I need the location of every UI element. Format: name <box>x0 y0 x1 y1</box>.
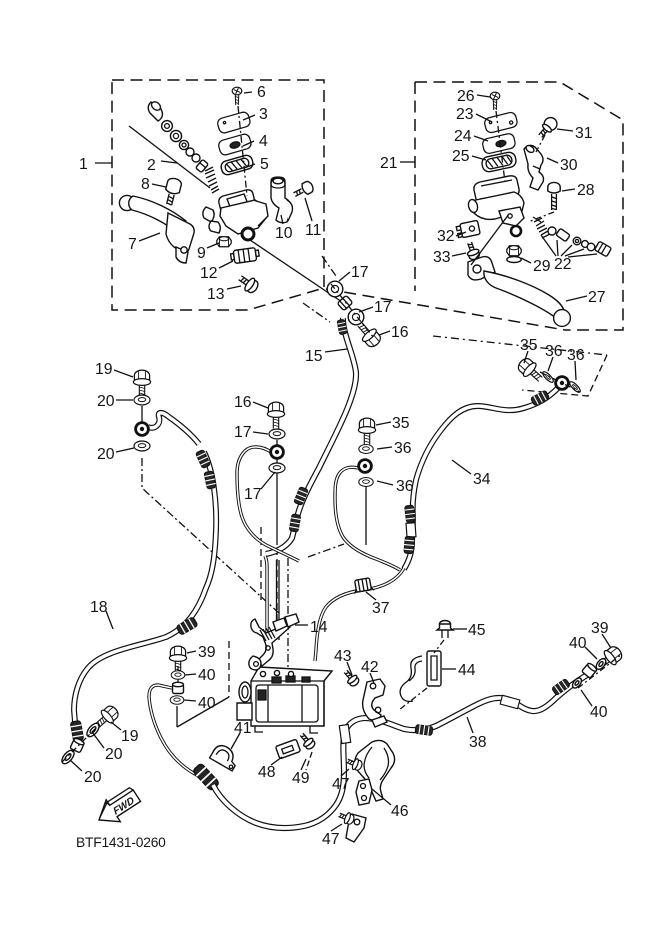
svg-text:BTF1431-0260: BTF1431-0260 <box>76 835 166 850</box>
svg-text:8: 8 <box>141 176 150 193</box>
svg-text:36: 36 <box>545 343 563 360</box>
svg-text:22: 22 <box>554 256 572 273</box>
svg-text:47: 47 <box>322 831 340 848</box>
svg-text:9: 9 <box>197 245 206 262</box>
svg-text:49: 49 <box>292 770 310 787</box>
svg-text:38: 38 <box>469 734 487 751</box>
svg-text:39: 39 <box>198 644 216 661</box>
svg-text:30: 30 <box>560 157 578 174</box>
svg-text:24: 24 <box>454 128 472 145</box>
svg-text:36: 36 <box>567 347 585 364</box>
svg-text:46: 46 <box>391 803 409 820</box>
svg-text:47: 47 <box>332 776 350 793</box>
svg-text:25: 25 <box>452 148 470 165</box>
svg-text:10: 10 <box>275 225 293 242</box>
svg-text:21: 21 <box>380 155 398 172</box>
svg-text:1: 1 <box>79 156 88 173</box>
svg-text:20: 20 <box>97 393 115 410</box>
svg-text:4: 4 <box>259 133 268 150</box>
svg-text:41: 41 <box>234 720 252 737</box>
svg-text:17: 17 <box>234 424 252 441</box>
svg-text:6: 6 <box>257 84 266 101</box>
svg-text:32: 32 <box>437 228 455 245</box>
svg-text:27: 27 <box>588 289 606 306</box>
svg-text:31: 31 <box>575 125 593 142</box>
svg-text:45: 45 <box>468 622 486 639</box>
svg-text:48: 48 <box>258 764 276 781</box>
svg-text:16: 16 <box>234 394 252 411</box>
svg-text:40: 40 <box>569 635 587 652</box>
svg-text:37: 37 <box>372 600 390 617</box>
svg-text:35: 35 <box>520 337 538 354</box>
svg-text:29: 29 <box>533 258 551 275</box>
svg-text:17: 17 <box>244 486 262 503</box>
svg-text:14: 14 <box>310 619 328 636</box>
svg-text:17: 17 <box>374 299 392 316</box>
svg-text:5: 5 <box>260 156 269 173</box>
svg-text:34: 34 <box>473 471 491 488</box>
svg-text:18: 18 <box>90 599 108 616</box>
svg-text:13: 13 <box>207 286 225 303</box>
svg-text:40: 40 <box>198 695 216 712</box>
svg-text:39: 39 <box>591 620 609 637</box>
svg-text:19: 19 <box>95 361 113 378</box>
svg-text:44: 44 <box>458 662 476 679</box>
svg-text:12: 12 <box>200 265 218 282</box>
svg-text:16: 16 <box>391 324 409 341</box>
svg-text:15: 15 <box>305 348 323 365</box>
svg-text:11: 11 <box>305 222 322 239</box>
svg-text:36: 36 <box>396 478 414 495</box>
svg-text:2: 2 <box>147 157 156 174</box>
svg-text:33: 33 <box>433 249 451 266</box>
svg-text:19: 19 <box>121 728 139 745</box>
svg-text:40: 40 <box>590 704 608 721</box>
svg-text:36: 36 <box>394 440 412 457</box>
svg-text:17: 17 <box>351 264 369 281</box>
svg-text:28: 28 <box>577 182 595 199</box>
svg-text:26: 26 <box>457 88 475 105</box>
svg-text:3: 3 <box>259 106 268 123</box>
svg-text:20: 20 <box>84 769 102 786</box>
svg-text:43: 43 <box>334 648 352 665</box>
svg-text:35: 35 <box>392 415 410 432</box>
svg-text:23: 23 <box>456 106 474 123</box>
svg-text:20: 20 <box>105 746 123 763</box>
svg-text:7: 7 <box>128 236 137 253</box>
svg-text:20: 20 <box>97 446 115 463</box>
svg-text:40: 40 <box>198 667 216 684</box>
